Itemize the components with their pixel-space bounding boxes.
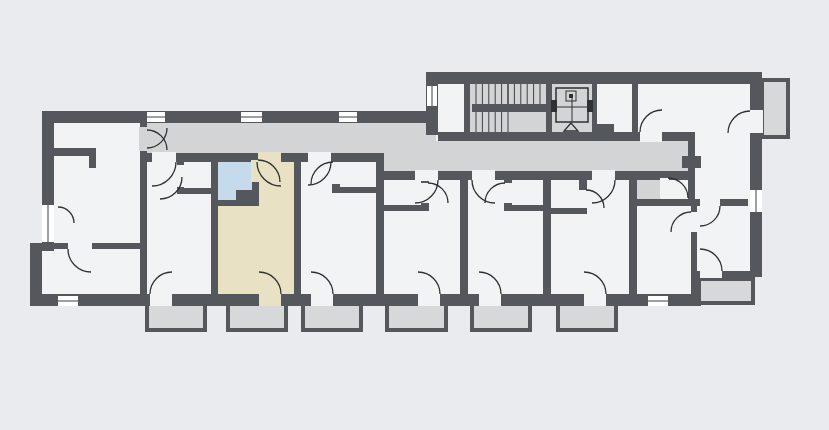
opening-balcony1-door bbox=[150, 293, 172, 306]
wall-unit7-alcove-b bbox=[579, 208, 587, 214]
wall-unit2-bath-a bbox=[177, 153, 184, 165]
opening-balcony6-door bbox=[584, 293, 606, 306]
wall-unit5-alcove-c bbox=[384, 205, 421, 211]
wall-bath-notch bbox=[236, 190, 252, 200]
opening-unit5-entry bbox=[415, 170, 438, 181]
wall-unit4-alcove-b bbox=[332, 184, 340, 193]
wall-above-corner-balcony-b bbox=[722, 271, 762, 277]
wall-unit7-alcove-a bbox=[579, 171, 587, 190]
wall-unit2-bath-c bbox=[184, 188, 211, 194]
wall-room-r1-east bbox=[632, 84, 638, 141]
wall-above-corner-balcony-a bbox=[691, 271, 700, 277]
opening-balcony2-door bbox=[259, 293, 281, 306]
wall-unit5-alcove-b bbox=[421, 203, 429, 211]
balcony-5 bbox=[472, 304, 530, 330]
floor-plan-viewport bbox=[0, 0, 829, 430]
opening-balcony4-door bbox=[418, 293, 440, 306]
wall-corridor-east-end bbox=[688, 141, 695, 200]
opening-balcony5-door bbox=[479, 293, 501, 306]
opening-unit7-entry bbox=[592, 170, 615, 181]
opening-unit4-alcove bbox=[331, 162, 341, 184]
elevator-jamb-right bbox=[587, 100, 593, 112]
opening-corridor-west-doors bbox=[139, 127, 148, 151]
wall-room-r1-step bbox=[597, 124, 614, 132]
opening-lobby-hall bbox=[700, 198, 720, 207]
opening-unit5-alcove bbox=[420, 183, 430, 203]
balcony-3 bbox=[303, 304, 361, 330]
opening-unit6-entry bbox=[472, 170, 495, 181]
wall-unit1-partition-a bbox=[54, 243, 68, 249]
opening-ext-hall bbox=[660, 178, 669, 198]
balcony-4 bbox=[387, 304, 446, 330]
opening-corner-balcony-door bbox=[700, 270, 722, 278]
balcony-2-highlighted-unit bbox=[228, 304, 286, 330]
wall-unit-7-8 bbox=[629, 171, 637, 306]
wall-unit1-alcove-b bbox=[89, 148, 96, 168]
wall-unit-6-7 bbox=[543, 171, 551, 306]
balcony-east bbox=[762, 80, 788, 137]
wall-bath-south bbox=[211, 200, 259, 206]
opening-balcony3-door bbox=[311, 293, 333, 306]
wall-unit1-partition-b bbox=[92, 243, 140, 249]
opening-unit7-alcove bbox=[578, 190, 588, 208]
balcony-corner-southeast bbox=[699, 279, 753, 303]
stair-landing-rail bbox=[472, 104, 548, 112]
wall-unit-4-5 bbox=[376, 153, 384, 306]
wall-ext-south-a bbox=[629, 199, 700, 206]
wall-top-left-section bbox=[42, 111, 436, 123]
wall-room-b-east-b bbox=[691, 232, 697, 306]
wall-east bbox=[750, 72, 762, 277]
wall-unit6-alcove-b bbox=[504, 203, 512, 211]
opening-unit4-entry bbox=[308, 152, 331, 163]
wall-top-right-section bbox=[426, 72, 762, 84]
opening-room-b bbox=[690, 212, 698, 232]
wall-unit-5-6 bbox=[460, 171, 468, 306]
wall-stairwell-west bbox=[464, 84, 470, 132]
wall-unit7-alcove-c bbox=[551, 208, 579, 214]
opening-unit6-alcove bbox=[503, 183, 513, 203]
opening-unit2-entry bbox=[152, 152, 176, 163]
elevator-jamb-left bbox=[551, 100, 557, 112]
door-openings-corridor bbox=[139, 127, 148, 151]
floor-plan bbox=[0, 0, 829, 430]
wall-unit4-alcove-c bbox=[340, 187, 377, 193]
wall-ext-south-b bbox=[720, 199, 748, 206]
wall-corridor-east-pier bbox=[682, 156, 701, 168]
wall-highlighted-unit-4 bbox=[294, 153, 301, 306]
wall-unit6-alcove-a bbox=[504, 171, 512, 183]
wall-ext-north bbox=[661, 171, 668, 178]
wall-unit4-alcove-a bbox=[332, 153, 340, 162]
opening-highlighted-entry bbox=[258, 152, 281, 163]
wall-unit-2-highlighted bbox=[211, 153, 218, 306]
elevator-counterweight-dot bbox=[569, 94, 573, 98]
wall-unit6-alcove-c bbox=[512, 205, 544, 211]
balcony-6 bbox=[558, 304, 616, 330]
balcony-1 bbox=[147, 304, 205, 330]
wall-room-b-east-a bbox=[691, 206, 697, 212]
opening-unit8-entry bbox=[640, 131, 662, 142]
wall-bath-east-a bbox=[252, 153, 259, 160]
opening-east-balcony-door bbox=[749, 110, 763, 133]
